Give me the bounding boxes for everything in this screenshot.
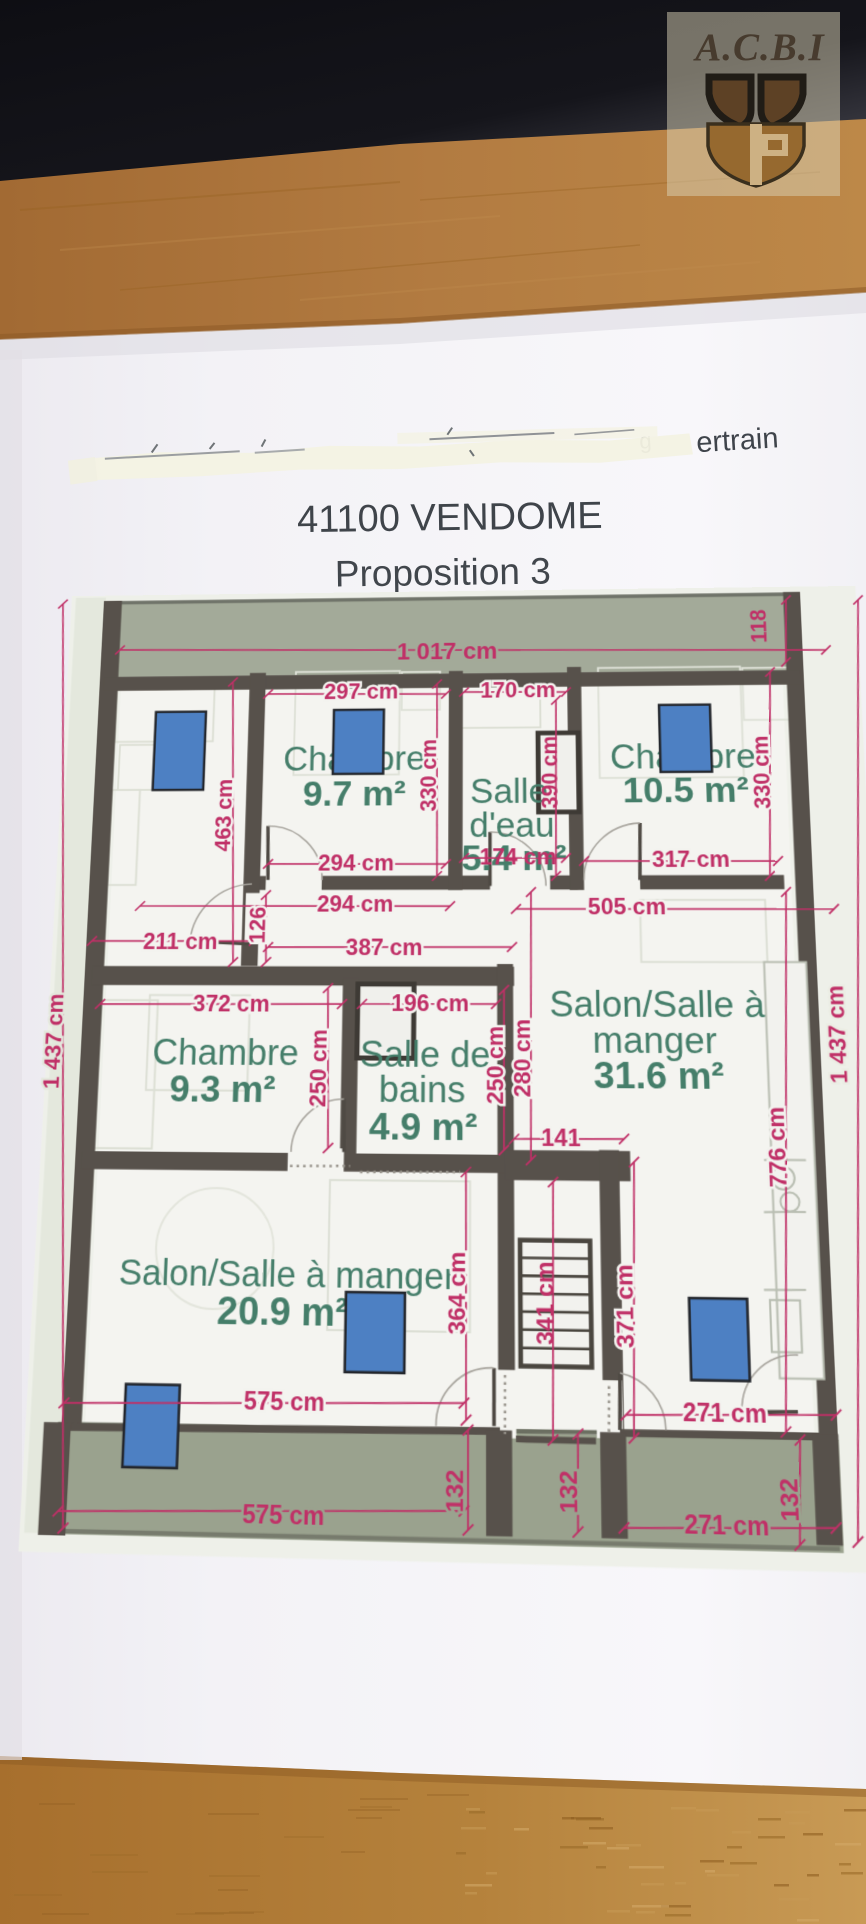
svg-text:9.3 m²: 9.3 m² — [169, 1068, 276, 1111]
svg-text:294 cm: 294 cm — [317, 893, 394, 918]
svg-text:250 cm: 250 cm — [483, 1026, 509, 1105]
svg-text:Proposition 3: Proposition 3 — [335, 550, 552, 594]
svg-text:575 cm: 575 cm — [242, 1501, 325, 1532]
svg-text:372 cm: 372 cm — [193, 992, 270, 1017]
svg-text:10.5 m²: 10.5 m² — [622, 770, 749, 810]
svg-text:271 cm: 271 cm — [684, 1511, 770, 1542]
svg-text:20.9 m²: 20.9 m² — [216, 1288, 348, 1335]
svg-text:463 cm: 463 cm — [211, 779, 238, 852]
svg-text:1 017 cm: 1 017 cm — [397, 639, 498, 665]
svg-text:505 cm: 505 cm — [588, 895, 666, 920]
svg-text:1 437 cm: 1 437 cm — [822, 985, 853, 1083]
svg-text:297 cm: 297 cm — [324, 681, 399, 705]
svg-text:387 cm: 387 cm — [345, 936, 422, 961]
svg-text:271 cm: 271 cm — [683, 1399, 768, 1429]
svg-text:317 cm: 317 cm — [652, 848, 731, 873]
svg-text:bains: bains — [378, 1069, 465, 1111]
svg-text:ertrain: ertrain — [695, 422, 779, 459]
svg-text:196 cm: 196 cm — [391, 991, 469, 1017]
svg-text:364 cm: 364 cm — [444, 1251, 471, 1334]
svg-text:390 cm: 390 cm — [537, 736, 563, 809]
svg-text:575 cm: 575 cm — [243, 1388, 325, 1417]
svg-text:Salle: Salle — [470, 772, 548, 811]
svg-text:776 cm: 776 cm — [763, 1107, 793, 1188]
svg-text:250 cm: 250 cm — [305, 1029, 332, 1107]
svg-text:211 cm: 211 cm — [143, 930, 218, 955]
svg-text:341 cm: 341 cm — [532, 1261, 560, 1345]
svg-text:174 cm: 174 cm — [480, 845, 557, 870]
svg-text:132: 132 — [442, 1469, 469, 1513]
svg-text:280 cm: 280 cm — [510, 1019, 536, 1097]
svg-text:118: 118 — [746, 609, 772, 643]
svg-text:A.C.B.I: A.C.B.I — [692, 26, 825, 69]
svg-text:1 437 cm: 1 437 cm — [39, 994, 69, 1090]
svg-text:132: 132 — [556, 1470, 584, 1514]
svg-text:31.6 m²: 31.6 m² — [593, 1054, 725, 1097]
svg-text:330 cm: 330 cm — [417, 739, 442, 812]
svg-text:132: 132 — [776, 1478, 806, 1522]
svg-text:9.7 m²: 9.7 m² — [302, 774, 406, 814]
svg-text:141: 141 — [541, 1125, 581, 1152]
svg-text:330 cm: 330 cm — [748, 735, 776, 808]
svg-text:294 cm: 294 cm — [318, 852, 394, 876]
svg-text:41100 VENDOME: 41100 VENDOME — [297, 495, 603, 541]
svg-text:371 cm: 371 cm — [611, 1264, 640, 1348]
svg-text:170 cm: 170 cm — [480, 679, 555, 703]
svg-text:126: 126 — [245, 907, 271, 944]
svg-text:4.9 m²: 4.9 m² — [369, 1105, 478, 1149]
